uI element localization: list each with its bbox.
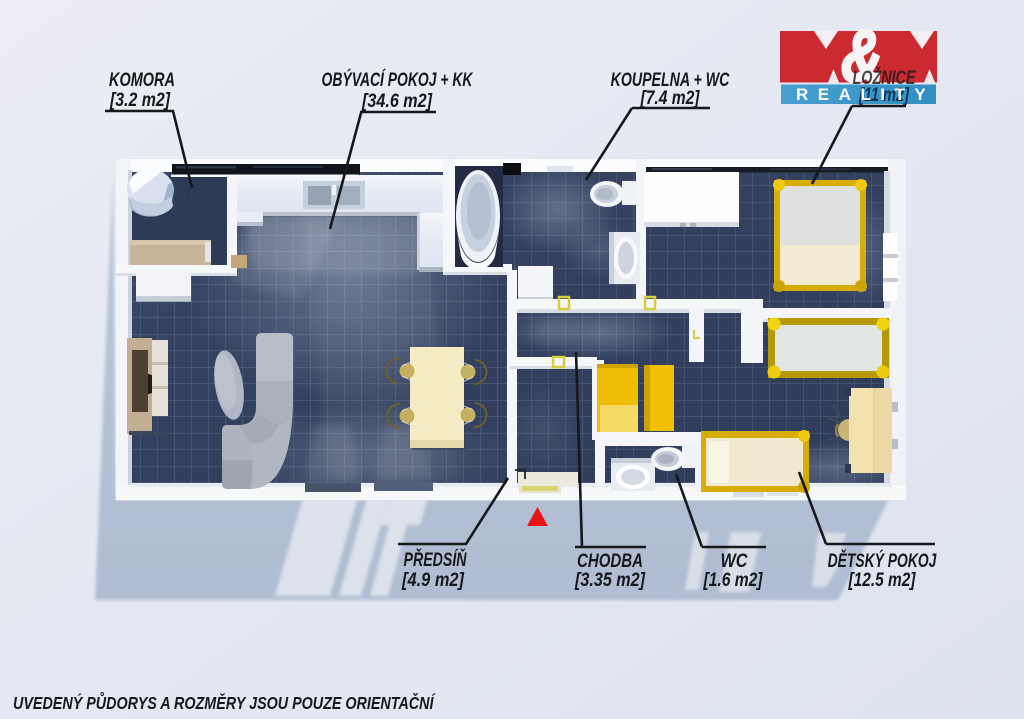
svg-text:UVEDENÝ PŮDORYS A ROZMĚRY JSOU: UVEDENÝ PŮDORYS A ROZMĚRY JSOU POUZE ORI…	[13, 691, 436, 713]
svg-text:PŘEDSÍŇ: PŘEDSÍŇ	[404, 549, 468, 571]
svg-text:[12.5 m2]: [12.5 m2]	[848, 568, 917, 590]
svg-text:OBÝVACÍ POKOJ + KK: OBÝVACÍ POKOJ + KK	[322, 69, 475, 91]
svg-text:[34.6 m2]: [34.6 m2]	[361, 90, 433, 112]
svg-text:[3.35 m2]: [3.35 m2]	[574, 569, 646, 591]
svg-text:REALITY: REALITY	[796, 85, 935, 104]
svg-text:[7.4 m2]: [7.4 m2]	[640, 87, 701, 109]
svg-text:KOMORA: KOMORA	[109, 69, 175, 90]
svg-text:[4.9 m2]: [4.9 m2]	[401, 569, 465, 590]
svg-text:[1.6 m2]: [1.6 m2]	[703, 569, 764, 591]
svg-text:[3.2 m2]: [3.2 m2]	[109, 89, 171, 111]
